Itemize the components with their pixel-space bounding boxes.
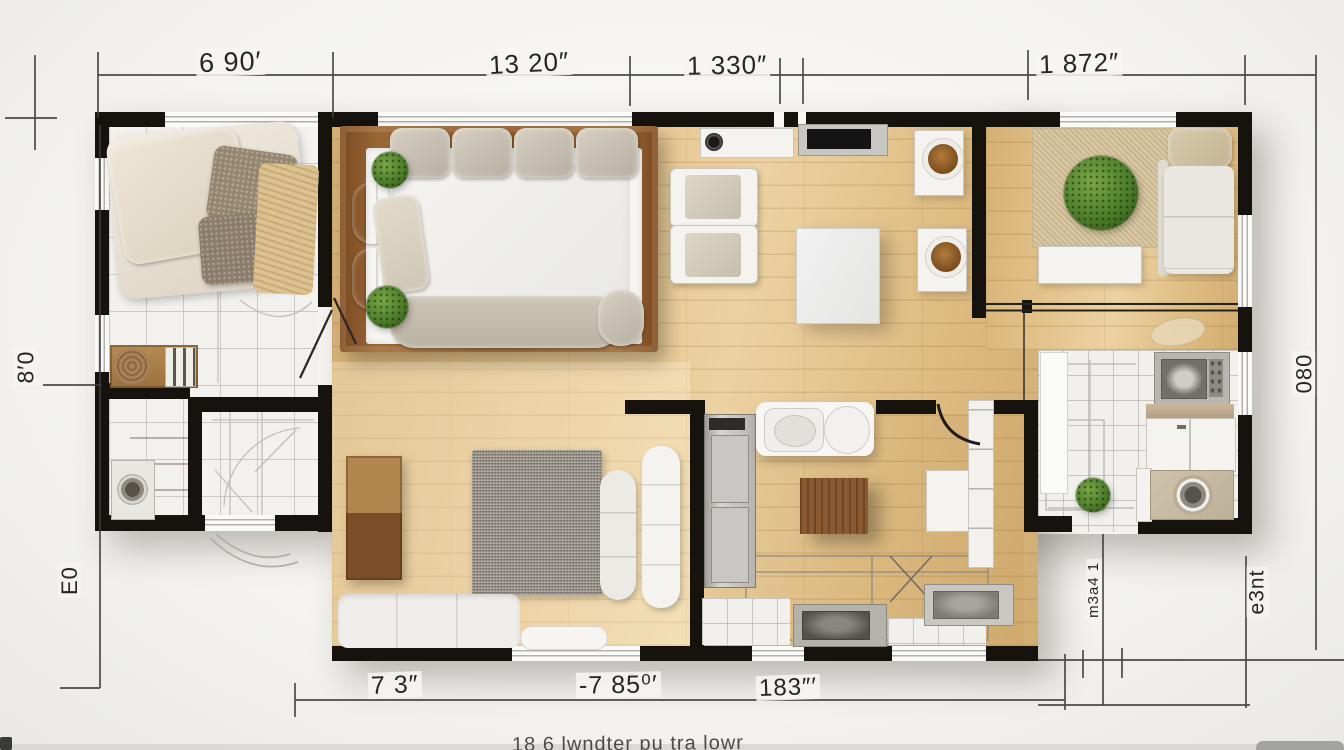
wall-segment <box>188 412 202 515</box>
wall-segment <box>95 210 109 315</box>
console-table <box>700 128 794 158</box>
wall-segment <box>330 112 378 127</box>
armchair <box>670 225 758 284</box>
gray-rug <box>472 450 602 595</box>
basin-lid-round <box>824 406 870 454</box>
wall-segment <box>972 112 986 318</box>
coffee-table <box>796 228 880 324</box>
wall-segment <box>1024 400 1038 532</box>
basin-bowl <box>774 415 816 447</box>
low-console <box>1038 246 1142 284</box>
wall-segment <box>332 646 512 661</box>
refrigerator <box>704 414 756 588</box>
window <box>1238 352 1252 415</box>
microwave-window <box>1161 359 1207 399</box>
sofa-cushion-column <box>642 446 680 608</box>
armchair-cushion <box>685 233 741 277</box>
kitchen-cabinet <box>926 470 974 532</box>
wall-segment <box>318 112 332 307</box>
floor-plan-canvas: 6 90′ 13 20″ 1 330″ 1 872″ 8′0 E0 080 e3… <box>0 0 1344 750</box>
microwave-buttons <box>1209 359 1223 397</box>
dim-label-bottom-1: 7 3″ <box>368 671 422 699</box>
wall-segment <box>1024 516 1072 532</box>
bathroom-cabinet <box>1146 418 1236 472</box>
railing-post <box>1022 300 1032 313</box>
sofa-cushion-column <box>600 470 636 600</box>
bottom-right-artifact <box>1256 741 1344 750</box>
washing-machine <box>111 460 155 520</box>
double-basin-fixture <box>756 402 874 456</box>
sideboard <box>346 456 402 580</box>
speaker-knob <box>705 133 723 151</box>
headboard-cushion <box>514 128 574 178</box>
wall-segment <box>784 112 798 127</box>
washing-machine <box>1150 470 1234 520</box>
bottom-left-artifact <box>0 737 12 750</box>
tv-console <box>798 124 888 156</box>
dresser <box>110 345 198 388</box>
plant <box>1076 478 1110 512</box>
oven <box>793 604 887 647</box>
dim-label-bottom-3: 183″′ <box>756 674 821 701</box>
door-slit <box>774 112 784 127</box>
door-threshold <box>205 515 275 531</box>
sofa-pillow <box>520 626 608 650</box>
dim-label-right-3: m3a4 1 <box>1086 559 1102 621</box>
wall-segment <box>632 112 774 127</box>
coffee-cup <box>923 139 963 179</box>
dim-label-top-2: 13 20″ <box>485 48 573 80</box>
dim-label-top-3: 1 330″ <box>684 51 771 80</box>
wall-segment <box>986 646 1038 661</box>
dim-label-right-2: e3nt <box>1246 567 1268 618</box>
microwave <box>1154 352 1230 406</box>
coffee-cup <box>926 237 966 277</box>
bolster-pillow <box>598 290 644 346</box>
wall-segment <box>188 397 332 412</box>
counter-strip <box>1146 404 1234 418</box>
dishwasher <box>924 584 1014 626</box>
cabinet-handle <box>1177 425 1186 429</box>
wall-segment <box>640 646 752 661</box>
fridge-door-lower <box>711 507 749 583</box>
dim-label-top-1: 6 90′ <box>196 47 266 78</box>
basin-lid <box>764 408 824 452</box>
tan-blanket <box>253 163 320 296</box>
headboard-cushion <box>452 128 512 178</box>
sofa-back-cushion <box>1168 128 1232 168</box>
side-table <box>917 228 967 292</box>
dim-label-top-4: 1 872″ <box>1036 49 1123 79</box>
dim-label-left-1: 8′0 <box>13 348 37 387</box>
tall-cabinet <box>968 400 994 568</box>
oven-window <box>802 611 870 640</box>
window <box>1238 215 1252 307</box>
tile-strip <box>702 598 790 645</box>
plant <box>372 152 408 188</box>
washer-door <box>1173 475 1213 515</box>
wall-segment <box>876 400 936 414</box>
window <box>892 646 986 661</box>
mattress <box>392 166 630 310</box>
daybed-sofa <box>338 594 520 648</box>
fridge-controls <box>709 418 745 430</box>
window <box>95 315 109 372</box>
dim-label-left-2: E0 <box>58 563 81 598</box>
kitchen-table <box>800 478 868 534</box>
window <box>1060 112 1176 127</box>
washer-door <box>117 474 148 505</box>
bench-cushion <box>390 296 620 348</box>
door-leaf <box>1040 352 1068 494</box>
crate <box>165 347 196 387</box>
dim-label-right-1: 080 <box>1292 351 1315 397</box>
headboard-cushion <box>576 128 638 178</box>
armchair <box>670 168 758 227</box>
dishwasher-panel <box>933 591 999 619</box>
fridge-door-upper <box>711 435 749 503</box>
wall-segment <box>804 646 892 661</box>
window <box>752 646 804 661</box>
side-table <box>914 130 964 196</box>
wall-segment <box>1238 307 1252 352</box>
armchair-cushion <box>685 175 741 219</box>
wall-segment <box>1238 112 1252 215</box>
window <box>378 112 632 127</box>
sofa-seat <box>1164 166 1234 274</box>
large-plant <box>1064 156 1138 230</box>
basket <box>114 348 150 384</box>
cabinet-divider <box>1189 419 1191 471</box>
wall-segment <box>625 400 705 414</box>
dim-label-bottom-2: -7 85⁰′ <box>576 671 661 699</box>
tv-screen <box>807 129 871 149</box>
wall-segment <box>1238 415 1252 534</box>
wall-segment <box>1138 518 1240 534</box>
caption-text: 18 6 lwndter pu tra lowr <box>512 732 744 750</box>
plant <box>366 286 408 328</box>
wall-segment <box>988 112 1060 127</box>
exterior-door-sketch <box>210 534 298 567</box>
